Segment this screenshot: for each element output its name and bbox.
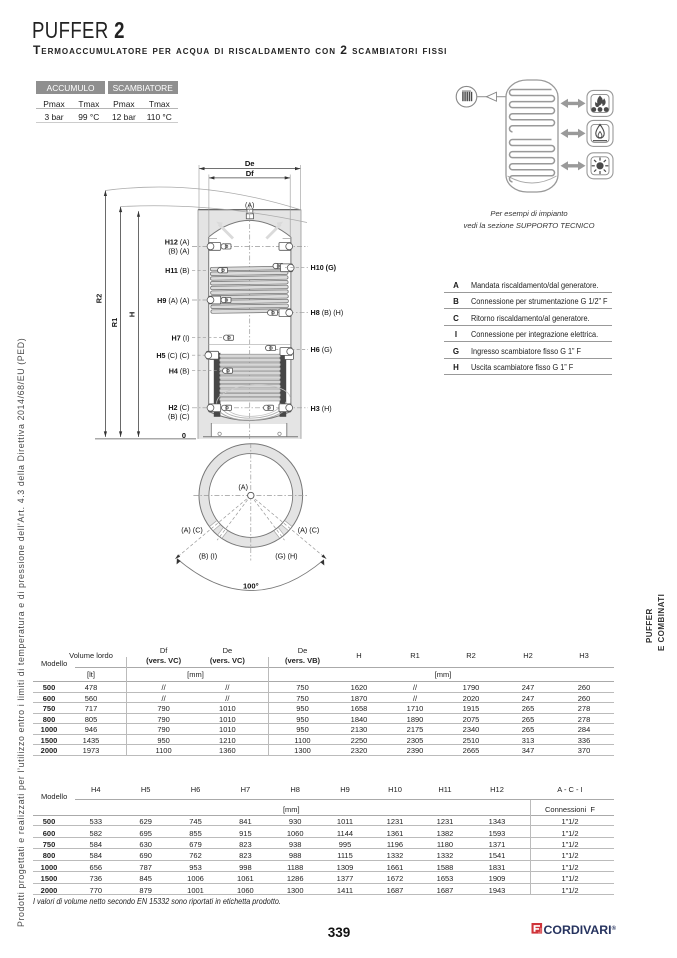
svg-text:(A) (C): (A) (C) [181,526,203,535]
svg-text:H7 (I): H7 (I) [172,334,190,343]
svg-text:H4 (B): H4 (B) [169,367,190,376]
svg-text:(B) (A): (B) (A) [168,246,189,255]
svg-text:100°: 100° [243,582,259,591]
svg-text:(G) (H): (G) (H) [275,552,297,561]
svg-text:R2: R2 [95,294,104,303]
svg-text:Df: Df [246,169,254,178]
svg-text:H3 (H): H3 (H) [311,404,332,413]
svg-text:H9 (A) (A): H9 (A) (A) [157,296,189,305]
svg-text:H: H [128,312,137,317]
svg-text:(A) (C): (A) (C) [298,526,320,535]
svg-text:R1: R1 [110,318,119,327]
svg-text:H11 (B): H11 (B) [165,266,189,275]
svg-text:H10 (G): H10 (G) [311,263,337,272]
svg-text:H8 (B) (H): H8 (B) (H) [311,308,344,317]
svg-text:H12 (A): H12 (A) [165,237,190,246]
svg-text:H2 (C): H2 (C) [168,403,189,412]
svg-text:H6 (G): H6 (G) [311,345,333,354]
svg-text:(B) (I): (B) (I) [199,552,217,561]
svg-text:(A): (A) [238,483,248,492]
svg-text:De: De [245,159,255,168]
svg-text:0: 0 [182,431,186,440]
svg-text:H5 (C) (C): H5 (C) (C) [156,351,189,360]
svg-text:(B) (C): (B) (C) [168,412,190,421]
